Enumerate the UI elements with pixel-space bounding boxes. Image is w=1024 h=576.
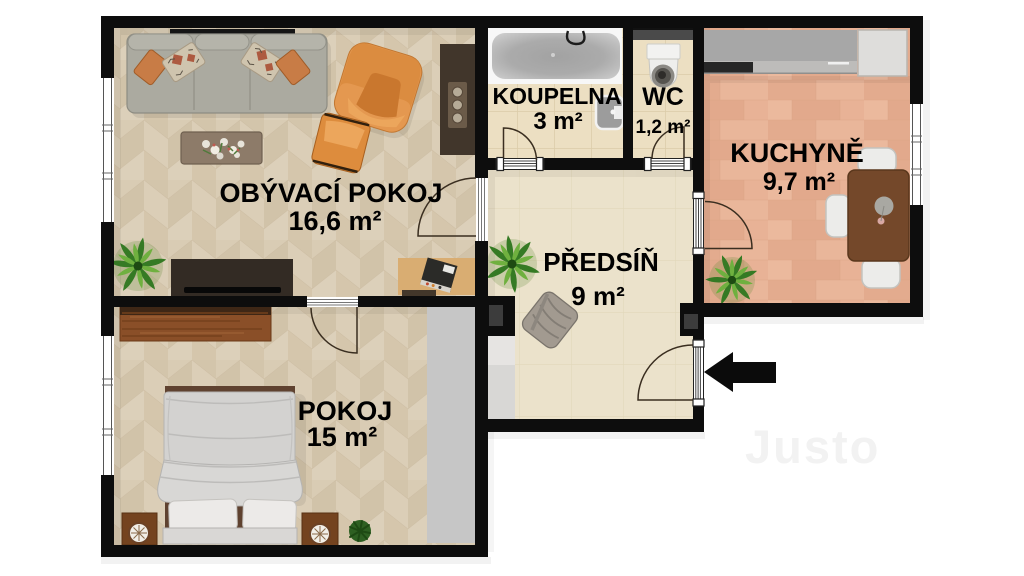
svg-text:15 m²: 15 m² [307,422,378,452]
svg-text:KUCHYNĚ: KUCHYNĚ [730,137,864,168]
svg-text:9,7 m²: 9,7 m² [763,168,835,196]
svg-text:Justo: Justo [745,420,880,473]
svg-text:1,2 m²: 1,2 m² [636,117,691,138]
svg-text:OBÝVACÍ POKOJ: OBÝVACÍ POKOJ [219,177,442,208]
svg-text:9 m²: 9 m² [571,281,625,311]
svg-text:3 m²: 3 m² [533,108,582,135]
svg-text:KOUPELNA: KOUPELNA [492,83,621,109]
svg-text:WC: WC [642,83,684,111]
svg-text:16,6 m²: 16,6 m² [288,206,381,236]
svg-text:PŘEDSÍŇ: PŘEDSÍŇ [543,247,659,277]
